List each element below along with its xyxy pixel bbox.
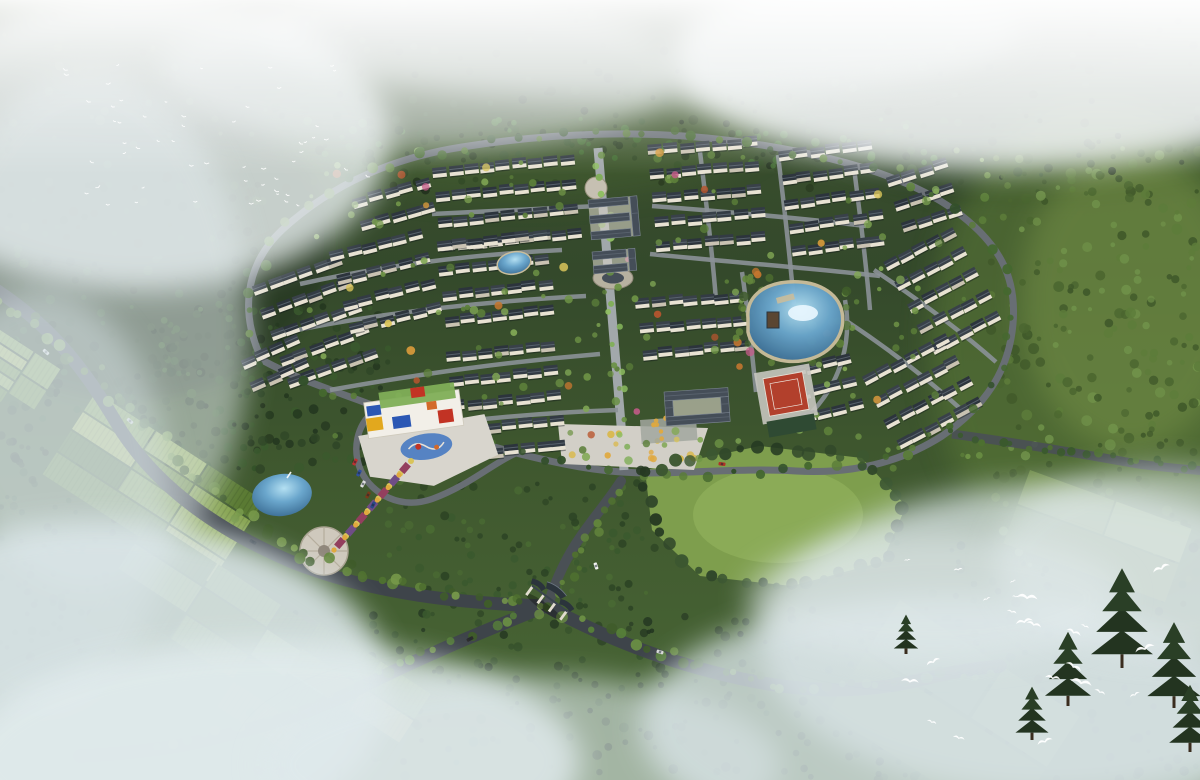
courtyard-building [592, 248, 637, 274]
scene-canvas [0, 0, 1200, 780]
color-block-facade [437, 409, 454, 424]
color-block-facade [392, 415, 411, 429]
aerial-site-rendering [0, 0, 1200, 780]
summit-fog-band [0, 0, 1200, 175]
pond-pavilion [767, 312, 779, 328]
color-block-facade [366, 416, 384, 431]
sun-reflection [788, 305, 818, 321]
courtyard-building [664, 388, 730, 426]
main-pond [748, 282, 843, 362]
courtyard-building [588, 196, 640, 240]
color-block-facade [426, 401, 437, 410]
